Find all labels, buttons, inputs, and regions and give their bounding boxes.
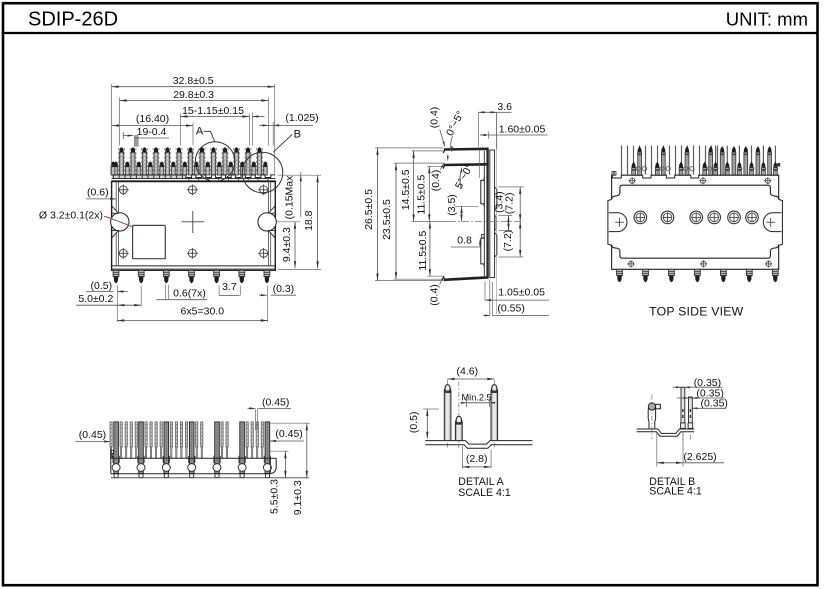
svg-text:(0.15Max: (0.15Max [284, 175, 296, 220]
svg-text:(0.4): (0.4) [428, 284, 440, 306]
svg-text:(2.625): (2.625) [683, 451, 716, 463]
svg-text:29.8±0.3: 29.8±0.3 [173, 89, 214, 101]
svg-text:11.5±0.5: 11.5±0.5 [417, 230, 429, 270]
svg-text:11.5±0.5: 11.5±0.5 [416, 174, 428, 214]
svg-text:(0.45): (0.45) [262, 396, 289, 408]
svg-text:(0.55): (0.55) [497, 302, 524, 314]
svg-text:0.8: 0.8 [457, 235, 472, 247]
svg-text:(4.6): (4.6) [457, 366, 479, 378]
svg-text:Ø 3.2±0.1(2x): Ø 3.2±0.1(2x) [39, 210, 103, 222]
svg-text:1.05±0.05: 1.05±0.05 [498, 286, 545, 298]
svg-text:(16.40): (16.40) [136, 113, 169, 125]
svg-text:(0.5): (0.5) [408, 412, 420, 434]
svg-text:23.5±0.5: 23.5±0.5 [381, 199, 393, 240]
svg-text:3.6: 3.6 [497, 101, 512, 113]
svg-text:19-0.4: 19-0.4 [137, 126, 167, 138]
svg-text:6x5=30.0: 6x5=30.0 [181, 306, 225, 318]
svg-text:(7.2): (7.2) [503, 193, 515, 215]
svg-text:SDIP-26D: SDIP-26D [28, 9, 118, 31]
svg-text:(0.45): (0.45) [275, 428, 302, 440]
svg-text:9.4±0.3: 9.4±0.3 [281, 227, 293, 262]
svg-text:32.8±0.5: 32.8±0.5 [173, 75, 214, 87]
svg-text:(0.3): (0.3) [273, 283, 295, 295]
svg-text:0.6(7x): 0.6(7x) [173, 288, 206, 300]
svg-text:B: B [294, 128, 301, 140]
svg-text:(0.4): (0.4) [429, 107, 441, 129]
svg-text:(1.025): (1.025) [285, 112, 318, 124]
svg-text:1.60±0.05: 1.60±0.05 [499, 123, 546, 135]
svg-text:(2.8): (2.8) [466, 453, 488, 465]
svg-text:14.5±0.5: 14.5±0.5 [400, 169, 412, 210]
svg-text:SCALE 4:1: SCALE 4:1 [458, 487, 511, 499]
svg-text:(0.5): (0.5) [91, 280, 113, 292]
svg-text:5.0±0.2: 5.0±0.2 [78, 293, 113, 305]
svg-text:TOP SIDE VIEW: TOP SIDE VIEW [649, 305, 744, 319]
svg-text:(7.2): (7.2) [502, 230, 514, 252]
svg-text:3.7: 3.7 [222, 281, 237, 293]
svg-text:(0.6): (0.6) [87, 186, 109, 198]
svg-text:(3.5): (3.5) [446, 194, 458, 216]
svg-text:9.1±0.3: 9.1±0.3 [292, 480, 304, 515]
svg-text:15-1.15±0.15: 15-1.15±0.15 [182, 105, 244, 117]
svg-text:SCALE 4:1: SCALE 4:1 [649, 486, 702, 498]
svg-text:A: A [196, 126, 204, 138]
svg-text:(0.4): (0.4) [430, 170, 442, 192]
svg-text:(0.45): (0.45) [79, 429, 106, 441]
svg-text:5.5±0.3: 5.5±0.3 [268, 479, 280, 514]
svg-text:18.8: 18.8 [303, 210, 315, 231]
svg-text:26.5±0.5: 26.5±0.5 [363, 189, 375, 230]
svg-text:UNIT: mm: UNIT: mm [726, 9, 808, 30]
